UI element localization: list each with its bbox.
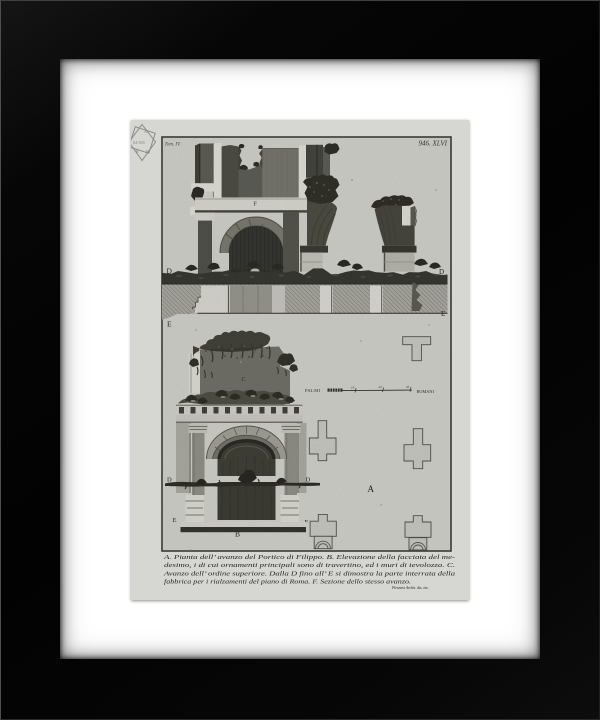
svg-text:Piranesi Archit. dis. inc.: Piranesi Archit. dis. inc. [391,586,429,590]
svg-text:R: R [136,149,139,154]
svg-text:desimo, i di cui ornamenti pri: desimo, i di cui ornamenti principali so… [164,563,455,569]
svg-text:fabbrica per i rialzamenti del: fabbrica per i rialzamenti del piano di … [164,579,411,586]
svg-text:04-935: 04-935 [133,140,145,145]
svg-text:A. Pianta dell’ avanzo del Por: A. Pianta dell’ avanzo del Portico di Fi… [162,554,455,561]
svg-text:A: A [144,129,147,134]
svg-text:Avanzo dell’ ordine superiore.: Avanzo dell’ ordine superiore. Dalla D f… [163,570,456,577]
svg-text:B: B [146,149,149,154]
